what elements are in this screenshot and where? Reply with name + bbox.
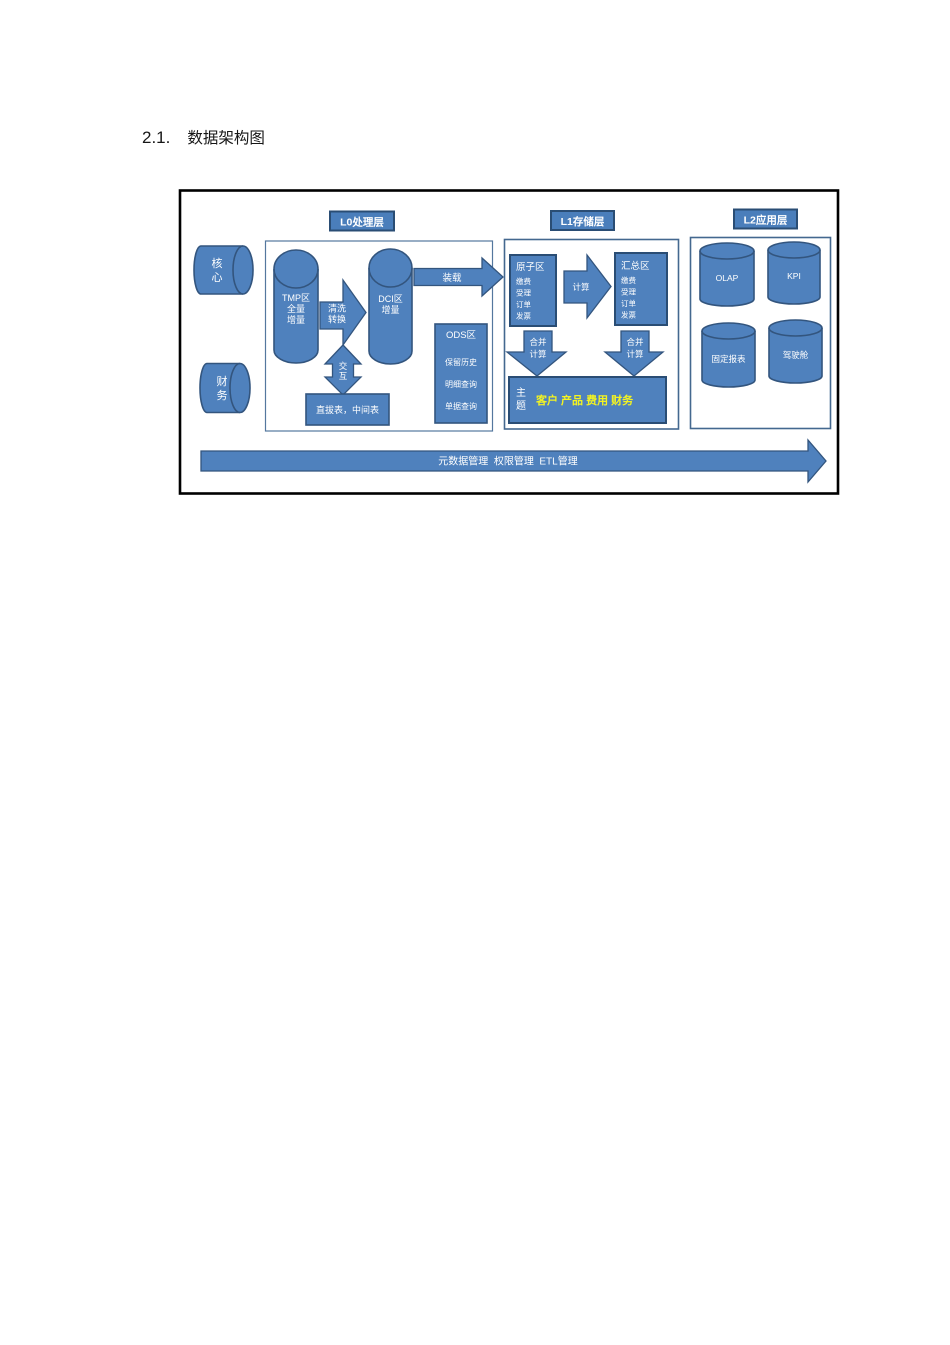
svg-text:题: 题	[516, 400, 526, 412]
svg-text:合并: 合并	[529, 337, 547, 347]
svg-text:缴费: 缴费	[516, 276, 531, 286]
svg-text:汇总区: 汇总区	[621, 260, 650, 272]
svg-text:清洗: 清洗	[328, 303, 346, 314]
svg-text:固定报表: 固定报表	[711, 354, 746, 364]
svg-text:互: 互	[339, 371, 348, 381]
svg-text:发票: 发票	[516, 311, 531, 321]
svg-text:TMP区: TMP区	[282, 293, 310, 303]
svg-text:L1存储层: L1存储层	[561, 215, 605, 228]
svg-text:客户 产品 费用 财务: 客户 产品 费用 财务	[535, 393, 634, 407]
svg-text:保留历史: 保留历史	[445, 357, 477, 367]
svg-text:核: 核	[212, 256, 223, 270]
svg-text:订单: 订单	[621, 298, 636, 308]
svg-text:驾驶舱: 驾驶舱	[783, 350, 809, 360]
svg-text:主: 主	[516, 387, 526, 399]
svg-text:L2应用层: L2应用层	[744, 214, 788, 227]
svg-text:原子区: 原子区	[516, 262, 545, 273]
svg-text:KPI: KPI	[787, 271, 801, 281]
svg-text:直拔表，中间表: 直拔表，中间表	[316, 404, 379, 415]
svg-text:转换: 转换	[328, 314, 346, 325]
svg-text:单据查询: 单据查询	[445, 401, 477, 411]
svg-text:受理: 受理	[516, 288, 531, 298]
svg-text:务: 务	[217, 389, 228, 402]
svg-text:受理: 受理	[621, 287, 636, 297]
svg-text:合并: 合并	[626, 337, 644, 347]
svg-text:计算: 计算	[626, 349, 644, 359]
svg-text:明细查询: 明细查询	[445, 379, 477, 389]
svg-text:增量: 增量	[287, 314, 305, 325]
svg-text:装载: 装载	[442, 272, 462, 284]
svg-text:财: 财	[217, 374, 228, 388]
svg-text:计算: 计算	[529, 349, 547, 359]
svg-text:全量: 全量	[287, 303, 305, 314]
svg-text:心: 心	[212, 271, 223, 284]
svg-text:发票: 发票	[621, 310, 636, 320]
svg-text:元数据管理 权限管理 ETL管理: 元数据管理 权限管理 ETL管理	[438, 455, 577, 468]
svg-text:订单: 订单	[516, 299, 531, 309]
svg-text:缴费: 缴费	[621, 275, 636, 285]
svg-text:增量: 增量	[381, 304, 399, 315]
svg-text:OLAP: OLAP	[716, 273, 739, 283]
svg-text:交: 交	[339, 361, 348, 371]
svg-text:DCI区: DCI区	[378, 294, 403, 304]
svg-text:L0处理层: L0处理层	[340, 216, 384, 229]
svg-text:ODS区: ODS区	[446, 330, 477, 341]
svg-text:计算: 计算	[572, 282, 590, 292]
